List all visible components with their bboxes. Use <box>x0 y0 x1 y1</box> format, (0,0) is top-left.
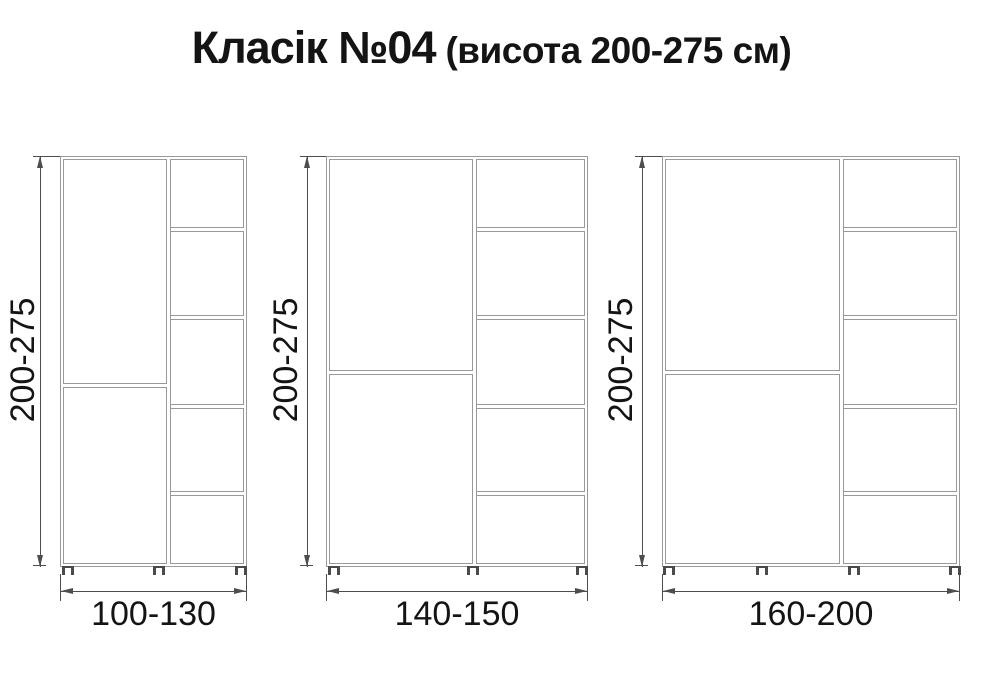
cabinet-inner-frame <box>329 159 585 564</box>
shelf-line <box>477 491 585 496</box>
shelf-line <box>477 404 585 409</box>
shelf-line <box>171 315 244 320</box>
cabinet-foot <box>467 566 479 575</box>
shelf-line <box>477 227 585 232</box>
arrow-right-icon <box>234 588 246 594</box>
page-title-suffix: (висота 200-275 см) <box>445 30 791 71</box>
shelf-line <box>844 315 957 320</box>
shelf-line <box>844 491 957 496</box>
arrow-up-icon <box>37 156 43 168</box>
arrow-left-icon <box>327 588 339 594</box>
cabinet-inner-frame <box>665 159 957 564</box>
height-dimension-line <box>307 156 308 567</box>
door-shelf-divider <box>472 159 477 564</box>
cabinet-outline <box>662 156 960 567</box>
arrow-left-icon <box>61 588 73 594</box>
shelf-line <box>171 227 244 232</box>
cabinet-inner-frame <box>63 159 244 564</box>
width-dimension-line <box>326 591 588 592</box>
door-split-line <box>63 383 167 388</box>
cabinet-outline <box>60 156 247 567</box>
width-dimension-label: 160-200 <box>662 596 960 633</box>
arrow-up-icon <box>639 156 645 168</box>
height-extension-tick-top <box>33 156 60 157</box>
page-title-main: Класік №04 <box>192 22 436 73</box>
width-dimension-line <box>662 591 960 592</box>
shelf-line <box>844 404 957 409</box>
shelf-line <box>171 491 244 496</box>
shelf-line <box>171 404 244 409</box>
height-extension-tick-bottom <box>33 565 46 566</box>
arrow-up-icon <box>304 156 310 168</box>
height-extension-tick-bottom <box>635 565 648 566</box>
height-extension-tick-top <box>635 156 662 157</box>
cabinet-foot <box>848 566 860 575</box>
cabinet-foot <box>328 566 340 575</box>
cabinet-foot <box>663 566 675 575</box>
cabinet-foot <box>756 566 768 575</box>
door-split-line <box>329 370 473 375</box>
arrow-left-icon <box>663 588 675 594</box>
width-dimension-line <box>60 591 247 592</box>
cabinet-foot <box>153 566 165 575</box>
height-extension-tick-bottom <box>300 565 313 566</box>
door-shelf-divider <box>839 159 844 564</box>
height-extension-tick-top <box>300 156 326 157</box>
shelf-line <box>477 315 585 320</box>
shelf-line <box>844 227 957 232</box>
door-shelf-divider <box>166 159 171 564</box>
furniture-diagram-page: Класік №04(висота 200-275 см) 200-275 <box>0 0 983 700</box>
arrow-right-icon <box>947 588 959 594</box>
width-dimension-label: 100-130 <box>60 596 247 633</box>
cabinet-foot <box>62 566 74 575</box>
width-dimension-label: 140-150 <box>326 596 588 633</box>
cabinet-outline <box>326 156 588 567</box>
height-dimension-line <box>642 156 643 567</box>
door-split-line <box>665 370 840 375</box>
arrow-right-icon <box>575 588 587 594</box>
page-title: Класік №04(висота 200-275 см) <box>0 22 983 74</box>
